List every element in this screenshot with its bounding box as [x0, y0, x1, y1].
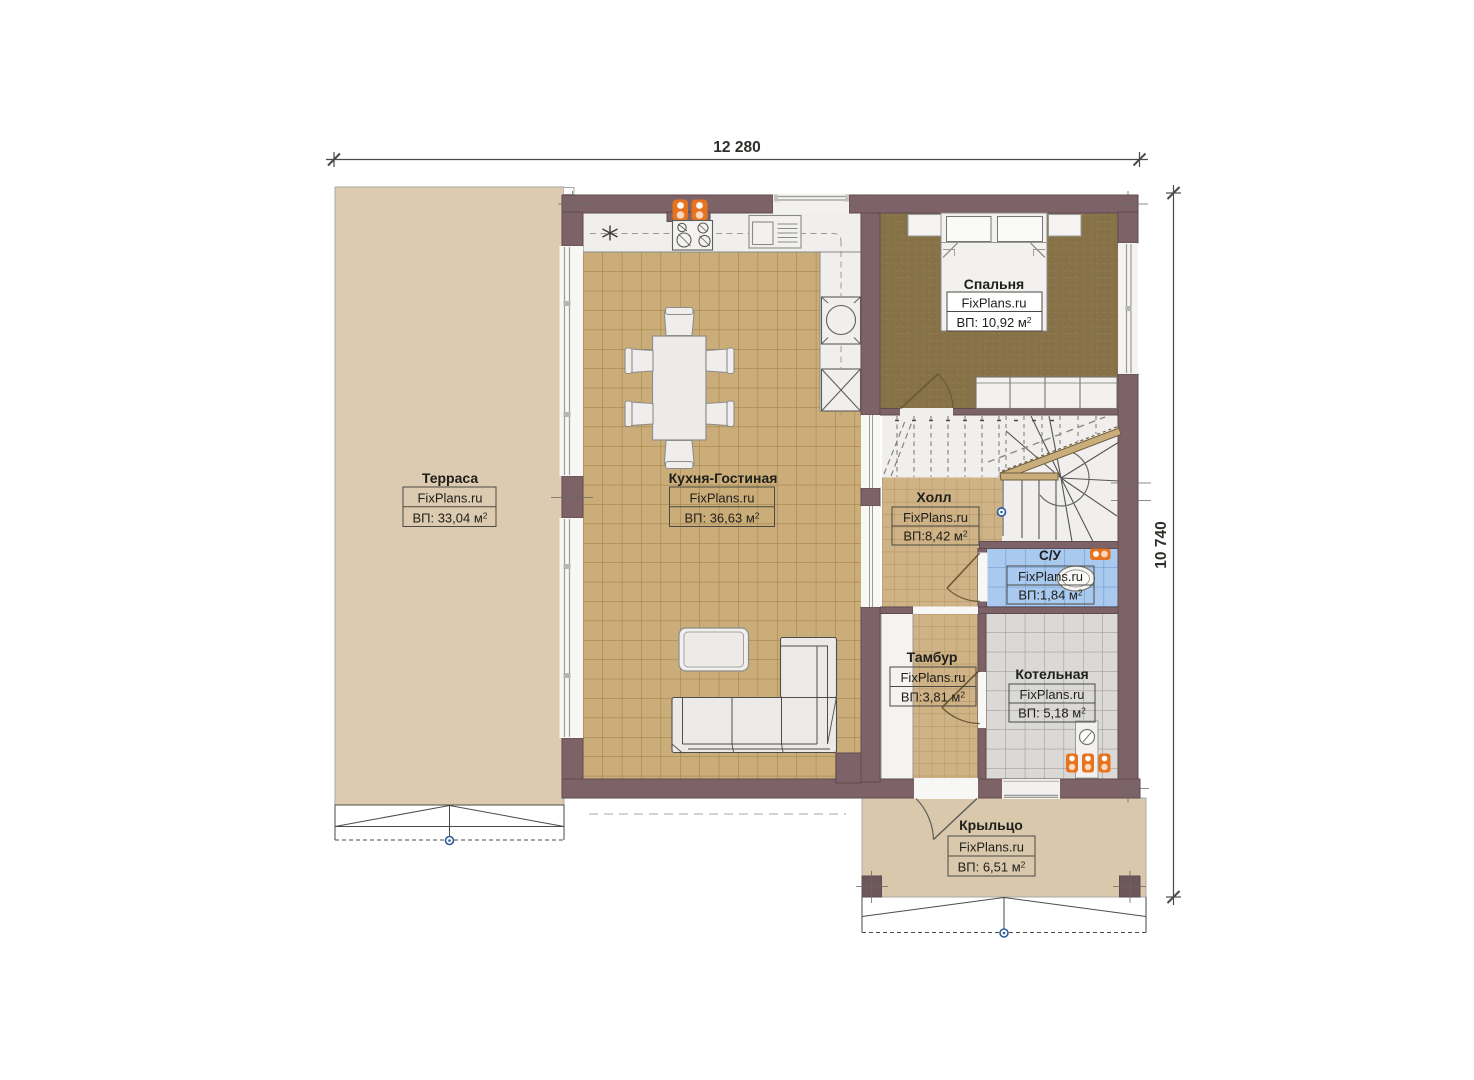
svg-text:FixPlans.ru: FixPlans.ru — [900, 670, 965, 685]
svg-text:Кухня-Гостиная: Кухня-Гостиная — [669, 470, 778, 486]
svg-text:Котельная: Котельная — [1015, 666, 1088, 682]
svg-text:FixPlans.ru: FixPlans.ru — [1019, 687, 1084, 702]
svg-text:Терраса: Терраса — [422, 470, 478, 486]
svg-text:Холл: Холл — [916, 489, 951, 505]
svg-text:FixPlans.ru: FixPlans.ru — [959, 840, 1024, 855]
svg-text:ВП: 10,92 м2: ВП: 10,92 м2 — [956, 315, 1031, 330]
svg-text:Спальня: Спальня — [964, 276, 1024, 292]
svg-text:FixPlans.ru: FixPlans.ru — [689, 491, 754, 506]
svg-text:ВП:1,84 м2: ВП:1,84 м2 — [1018, 588, 1082, 603]
svg-text:ВП:8,42 м2: ВП:8,42 м2 — [903, 529, 967, 544]
svg-text:FixPlans.ru: FixPlans.ru — [961, 296, 1026, 311]
svg-text:ВП: 6,51 м2: ВП: 6,51 м2 — [958, 860, 1026, 875]
svg-text:С/У: С/У — [1039, 548, 1062, 563]
svg-text:ВП: 5,18 м2: ВП: 5,18 м2 — [1018, 706, 1086, 721]
svg-text:FixPlans.ru: FixPlans.ru — [1018, 569, 1083, 584]
svg-text:ВП:3,81 м2: ВП:3,81 м2 — [901, 690, 965, 705]
svg-text:FixPlans.ru: FixPlans.ru — [417, 491, 482, 506]
svg-text:10 740: 10 740 — [1153, 521, 1170, 568]
svg-text:FixPlans.ru: FixPlans.ru — [903, 510, 968, 525]
svg-text:Тамбур: Тамбур — [907, 649, 958, 665]
svg-text:12 280: 12 280 — [713, 139, 760, 156]
svg-text:ВП: 33,04 м2: ВП: 33,04 м2 — [412, 511, 487, 526]
svg-text:Крыльцо: Крыльцо — [959, 817, 1023, 833]
svg-text:ВП: 36,63 м2: ВП: 36,63 м2 — [684, 511, 759, 526]
